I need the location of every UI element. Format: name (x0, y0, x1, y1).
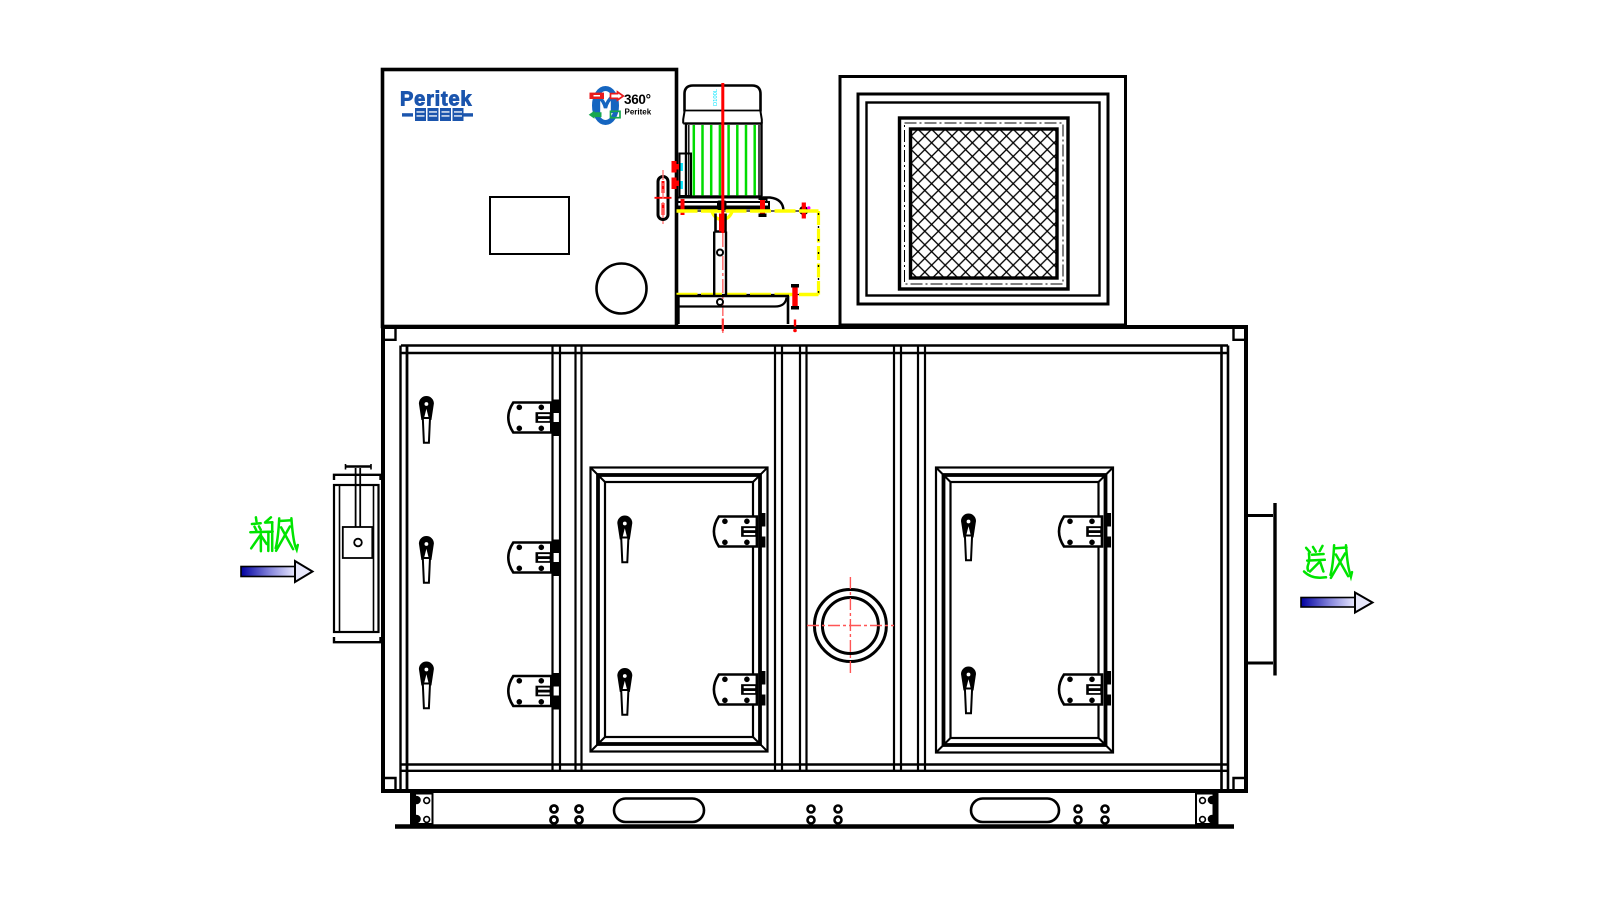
svg-text:D100L: D100L (713, 88, 719, 106)
svg-text:Peritek: Peritek (400, 89, 472, 111)
svg-text:Peritek: Peritek (625, 108, 652, 117)
svg-text:360°: 360° (624, 92, 651, 107)
